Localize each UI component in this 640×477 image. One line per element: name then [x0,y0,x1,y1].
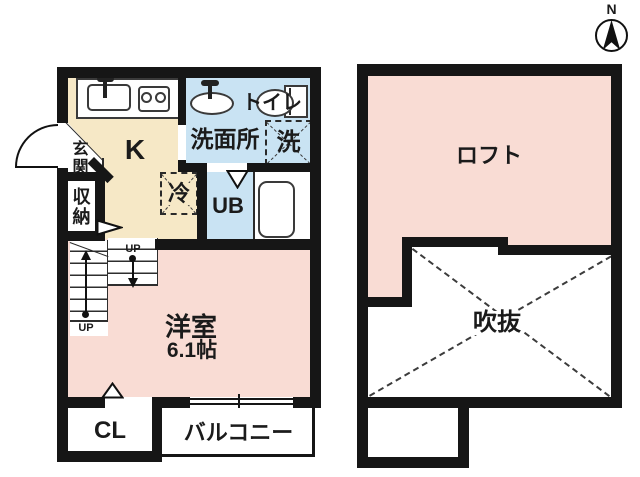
wall [458,397,469,468]
loft-lower-box-floor [368,408,458,457]
wall [611,64,622,407]
washbasin-icon [190,92,234,115]
entrance-label: 玄関 [65,137,90,179]
stairs-arrow-line-upper [132,259,134,279]
stairs-up-label-upper: UP [119,243,147,256]
door-swing-arc-icon [15,124,58,167]
balcony-window-tick [238,394,240,408]
loft-label: ロフト [456,144,522,168]
western-room-size: 6.1帖 [147,339,237,361]
void-label: 吹抜 [468,310,526,336]
wall [57,67,68,123]
balcony-window-line [190,403,293,405]
stairs-arrow-dot [82,311,89,318]
kitchen-sink-icon [87,84,131,111]
closet-label: CL [90,419,130,443]
wall [498,245,611,255]
wall [57,451,162,462]
kitchen-label: K [120,136,150,164]
kitchen-faucet-stem [103,82,107,98]
void-label-text: 吹抜 [471,311,523,335]
storage-label: 収納 [67,183,94,231]
compass-north-label: N [601,1,622,17]
wall [293,397,321,408]
floor-plan-canvas: 玄関 K 収納 洗面所 トイレ 洗 冷 UB 洋室 6.1帖 CL バルコニー … [0,0,640,477]
wall [152,397,162,462]
stairs-arrowhead-down [128,278,138,288]
door-leaf-line [15,166,58,168]
closet-door-icon [101,382,124,399]
wall [178,67,186,125]
unit-bath-label: UB [208,194,248,218]
unit-bath-door-icon [226,170,249,189]
stairs-door-icon [96,219,123,236]
fridge-label-text: 冷 [167,183,191,205]
wall [155,239,321,250]
bathtub-icon [258,181,295,238]
stove-burner-left [141,92,152,103]
wall [310,67,321,408]
wall [57,67,321,78]
washer-label: 洗 [265,120,312,165]
stairs-arrow-line [85,258,87,314]
stairs-up-label-lower: UP [72,322,100,335]
wall [357,297,412,307]
fridge-label: 冷 [160,172,198,215]
wall [357,397,622,408]
balcony-label: バルコニー [165,421,312,445]
wall [402,237,508,247]
wall [357,64,622,76]
wall [357,64,368,407]
wall [357,457,469,468]
toilet-label: トイレ [240,91,304,115]
washroom-label: 洗面所 [186,126,264,152]
washbasin-faucet-stem [208,86,212,99]
western-room-label: 洋室 [156,313,226,341]
balcony-window-line [190,398,293,400]
stove-burner-right [155,92,166,103]
wall [178,163,207,172]
